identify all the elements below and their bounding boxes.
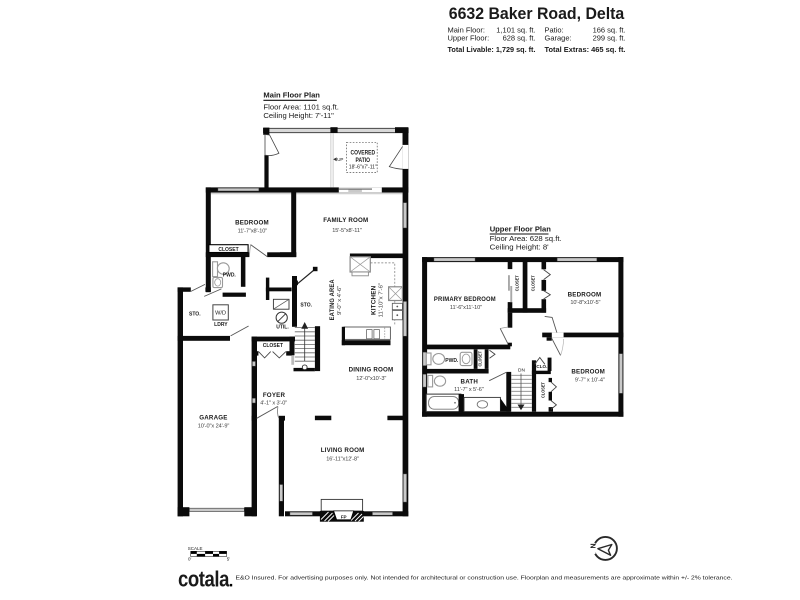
svg-text:299 sq. ft.: 299 sq. ft. <box>593 33 626 42</box>
svg-text:Ceiling Height: 8': Ceiling Height: 8' <box>490 243 550 252</box>
svg-text:FAMILY ROOM: FAMILY ROOM <box>323 217 368 224</box>
svg-text:11'-6"x11'-10": 11'-6"x11'-10" <box>450 305 482 311</box>
svg-text:5': 5' <box>227 556 231 561</box>
svg-text:W/D: W/D <box>215 311 226 317</box>
svg-text:0': 0' <box>188 556 192 561</box>
svg-text:FP: FP <box>341 514 347 519</box>
svg-text:BEDROOM: BEDROOM <box>568 291 602 298</box>
svg-text:9'-0" x 4'-6": 9'-0" x 4'-6" <box>337 286 343 315</box>
svg-text:BATH: BATH <box>461 379 479 386</box>
svg-text:BEDROOM: BEDROOM <box>571 369 605 376</box>
svg-text:E&O Insured. For advertising p: E&O Insured. For advertising purposes on… <box>236 576 733 582</box>
svg-text:Upper Floor Plan: Upper Floor Plan <box>490 224 552 233</box>
svg-text:Total Livable: 1,729 sq. ft.: Total Livable: 1,729 sq. ft. <box>448 45 536 54</box>
svg-text:LIVING ROOM: LIVING ROOM <box>321 447 365 454</box>
svg-text:CLOSET: CLOSET <box>540 382 545 398</box>
svg-text:CLO.: CLO. <box>536 364 547 369</box>
svg-text:16'-11"x12'-8": 16'-11"x12'-8" <box>326 456 359 462</box>
svg-text:COVERED: COVERED <box>351 150 376 157</box>
svg-text:CLOSET: CLOSET <box>263 343 283 349</box>
svg-text:BEDROOM: BEDROOM <box>235 220 269 227</box>
svg-text:cotala: cotala <box>178 566 230 591</box>
svg-text:PWD.: PWD. <box>445 358 459 364</box>
svg-text:DN: DN <box>518 367 525 373</box>
svg-text:CLOSET: CLOSET <box>218 247 238 253</box>
svg-text:CLOSET: CLOSET <box>531 275 536 291</box>
svg-text:Main Floor Plan: Main Floor Plan <box>263 91 320 100</box>
svg-text:15'-5"x8'-11": 15'-5"x8'-11" <box>332 228 362 234</box>
svg-text:EATING AREA: EATING AREA <box>329 279 336 321</box>
svg-text:PRIMARY BEDROOM: PRIMARY BEDROOM <box>434 296 496 303</box>
svg-text:UP: UP <box>337 157 343 162</box>
svg-text:4'-1" x 3'-0": 4'-1" x 3'-0" <box>260 400 287 406</box>
svg-text:GARAGE: GARAGE <box>199 414 227 421</box>
svg-text:PWD.: PWD. <box>223 273 237 279</box>
svg-text:N: N <box>591 543 598 548</box>
svg-text:UTIL.: UTIL. <box>276 324 289 330</box>
svg-text:Total Extras: 465 sq. ft.: Total Extras: 465 sq. ft. <box>545 45 626 54</box>
svg-text:Ceiling Height: 7'-11": Ceiling Height: 7'-11" <box>263 111 334 120</box>
svg-text:FOYER: FOYER <box>263 392 286 399</box>
svg-text:11'-7"x8'-10": 11'-7"x8'-10" <box>238 228 268 234</box>
svg-text:12'-0"x10'-3": 12'-0"x10'-3" <box>356 376 386 382</box>
svg-text:11'-7" x 5'-6": 11'-7" x 5'-6" <box>454 387 484 393</box>
svg-text:Upper Floor:: Upper Floor: <box>448 33 490 42</box>
svg-text:9'-7" x 10'-4": 9'-7" x 10'-4" <box>575 378 605 384</box>
svg-text:6632 Baker Road, Delta: 6632 Baker Road, Delta <box>449 5 625 23</box>
svg-text:DINING ROOM: DINING ROOM <box>349 367 394 374</box>
svg-text:18'-6"x7'-11": 18'-6"x7'-11" <box>349 165 377 171</box>
svg-text:Garage:: Garage: <box>545 33 572 42</box>
svg-text:SCALE: SCALE <box>188 546 203 551</box>
svg-text:628 sq. ft.: 628 sq. ft. <box>503 33 536 42</box>
svg-text:11'-10"x 7'-6": 11'-10"x 7'-6" <box>378 283 384 318</box>
svg-text:STO.: STO. <box>300 303 312 309</box>
svg-text:STO.: STO. <box>189 311 201 317</box>
svg-text:10'-8"x10'-5": 10'-8"x10'-5" <box>570 300 600 306</box>
svg-text:CLOSET: CLOSET <box>478 351 483 367</box>
svg-text:PATIO: PATIO <box>356 157 371 164</box>
svg-text:LDRY: LDRY <box>214 322 228 328</box>
svg-text:KITCHEN: KITCHEN <box>370 285 377 315</box>
svg-text:CLOSET: CLOSET <box>514 275 519 291</box>
svg-text:10'-0"x 24'-9": 10'-0"x 24'-9" <box>198 423 230 429</box>
